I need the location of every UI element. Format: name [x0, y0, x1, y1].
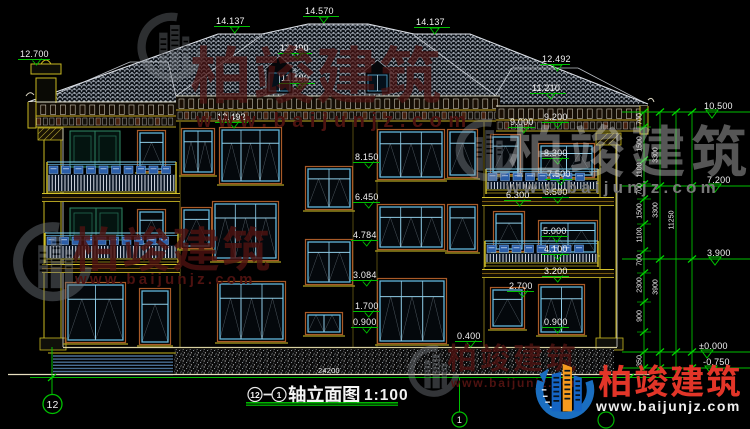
svg-text:0.900: 0.900 [353, 317, 377, 327]
svg-text:4.784: 4.784 [353, 230, 377, 240]
svg-text:350: 350 [637, 355, 644, 367]
svg-text:900: 900 [637, 310, 644, 322]
svg-text:www.baijunjz.com: www.baijunjz.com [505, 178, 720, 197]
svg-text:12.492: 12.492 [542, 54, 571, 64]
svg-text:3.200: 3.200 [544, 266, 568, 276]
svg-text:2300: 2300 [637, 277, 644, 293]
svg-text:4.100: 4.100 [544, 244, 568, 254]
svg-text:11250: 11250 [669, 210, 676, 229]
svg-text:11.210: 11.210 [532, 83, 560, 93]
svg-text:5.000: 5.000 [543, 226, 567, 236]
svg-text:www.baijunjz.com: www.baijunjz.com [195, 110, 473, 132]
svg-text:700: 700 [637, 254, 644, 266]
svg-text:8.150: 8.150 [355, 152, 379, 162]
svg-text:14.137: 14.137 [216, 16, 245, 26]
svg-text:1500: 1500 [637, 203, 644, 219]
svg-text:14.570: 14.570 [305, 6, 334, 16]
svg-text:12.700: 12.700 [20, 49, 49, 59]
svg-text:3.084: 3.084 [353, 270, 377, 280]
svg-text:12: 12 [46, 399, 58, 411]
svg-text:9.200: 9.200 [544, 112, 568, 122]
svg-text:0.900: 0.900 [544, 317, 568, 327]
svg-text:24200: 24200 [318, 366, 340, 375]
svg-text:0.400: 0.400 [457, 331, 481, 341]
svg-text:2.700: 2.700 [509, 281, 533, 291]
svg-text:3300: 3300 [653, 202, 660, 218]
svg-text:www.baijunjz.com: www.baijunjz.com [74, 271, 256, 288]
svg-text:1: 1 [277, 390, 282, 400]
svg-text:www.baijunjz.com: www.baijunjz.com [595, 398, 741, 414]
svg-text:12: 12 [250, 390, 260, 400]
svg-text:6.450: 6.450 [355, 192, 379, 202]
svg-text:1: 1 [457, 415, 462, 425]
svg-text:1:100: 1:100 [364, 387, 409, 404]
svg-text:700: 700 [637, 113, 644, 125]
svg-text:1.700: 1.700 [355, 301, 379, 311]
svg-text:3900: 3900 [653, 279, 660, 295]
svg-text:1100: 1100 [637, 227, 644, 242]
svg-text:14.137: 14.137 [416, 17, 445, 27]
